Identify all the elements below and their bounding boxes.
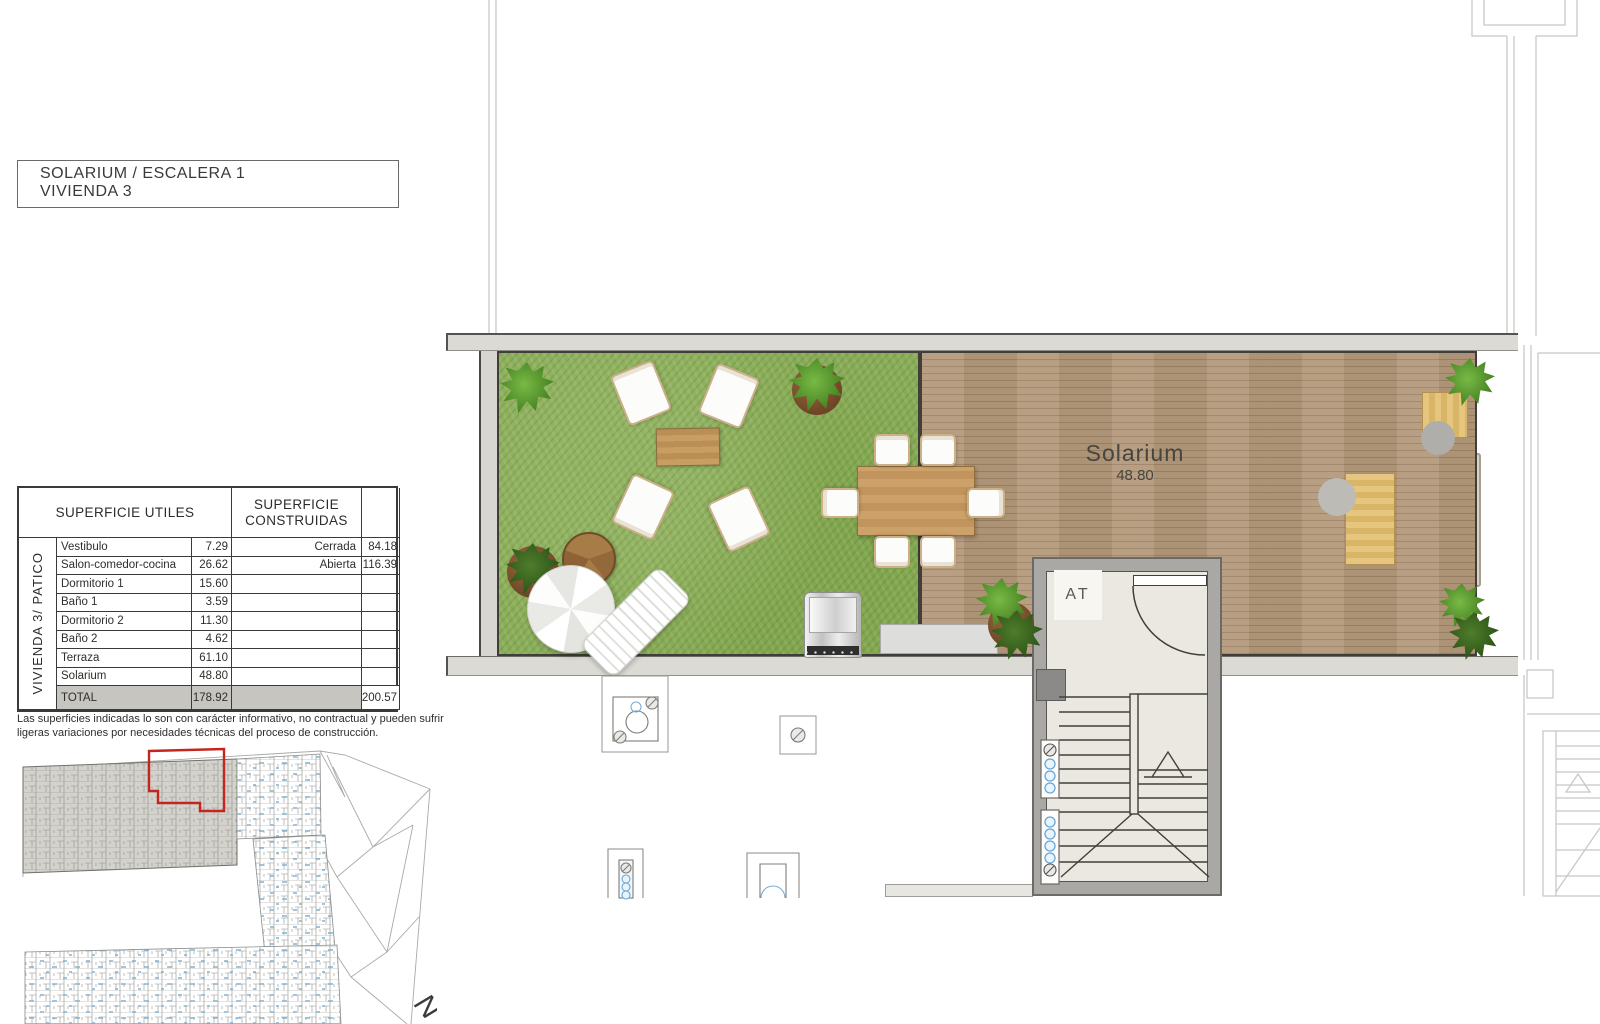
table-row-value: 26.62 [192, 557, 232, 576]
room-area: 48.80 [1050, 467, 1220, 484]
table-row-rlabel [232, 668, 362, 687]
title-line-1: SOLARIUM / ESCALERA 1 [40, 165, 398, 183]
table-row-rvalue [362, 575, 400, 594]
table-row-rvalue [362, 668, 400, 687]
table-total-rlabel [232, 686, 362, 710]
deck-counter [880, 624, 998, 654]
table-row-name: Solarium [57, 668, 192, 687]
table-row-rlabel [232, 594, 362, 613]
table-row-value: 3.59 [192, 594, 232, 613]
stair-label-box: AT [1054, 570, 1102, 620]
lower-wall-bar [885, 884, 1033, 897]
table-row-rvalue: 116.39 [362, 557, 400, 576]
dining-chair-left [821, 488, 859, 518]
round-gray-table [1421, 421, 1455, 455]
bottom-wall-left [446, 656, 1032, 676]
table-total-value: 178.92 [192, 686, 232, 710]
disclaimer-text: Las superficies indicadas lo son con car… [17, 712, 445, 741]
table-side-label: VIVIENDA 3/ PATICO [19, 538, 57, 710]
table-row-rlabel [232, 649, 362, 668]
surfaces-table: SUPERFICIE UTILES SUPERFICIE CONSTRUIDAS… [17, 486, 398, 712]
dining-chair-top-1 [874, 434, 910, 466]
table-row-rvalue [362, 631, 400, 650]
table-header-left: SUPERFICIE UTILES [19, 488, 232, 538]
table-row-rvalue [362, 649, 400, 668]
table-row-rlabel: Abierta [232, 557, 362, 576]
table-row-rvalue [362, 612, 400, 631]
garden-side-table [656, 427, 721, 466]
table-row-value: 15.60 [192, 575, 232, 594]
dining-chair-bottom-2 [920, 536, 956, 568]
table-row-name: Terraza [57, 649, 192, 668]
table-row-rvalue: 84.18 [362, 538, 400, 557]
title-line-2: VIVIENDA 3 [40, 183, 398, 201]
bbq-grill [804, 592, 862, 658]
table-row-value: 61.10 [192, 649, 232, 668]
table-row-rlabel: Cerrada [232, 538, 362, 557]
table-row-name: Dormitorio 1 [57, 575, 192, 594]
bottom-wall-right [1222, 656, 1518, 676]
wall-connector-block [1036, 669, 1066, 701]
site-bottom-wing [25, 945, 341, 1024]
table-row-value: 48.80 [192, 668, 232, 687]
table-row-name: Dormitorio 2 [57, 612, 192, 631]
grill-lid [809, 597, 857, 633]
room-name: Solarium [1050, 440, 1220, 467]
door-leaf [1133, 575, 1207, 586]
site-right-wing [253, 835, 335, 954]
round-rug [1318, 478, 1356, 516]
table-row-value: 11.30 [192, 612, 232, 631]
room-label: Solarium 48.80 [1050, 440, 1220, 484]
north-indicator: N [408, 988, 437, 1024]
top-wall [446, 333, 1518, 351]
table-row-name: Baño 1 [57, 594, 192, 613]
table-total-label: TOTAL [57, 686, 192, 710]
table-row-name: Salon-comedor-cocina [57, 557, 192, 576]
left-wall-strip [479, 351, 497, 656]
table-row-rvalue [362, 594, 400, 613]
table-header-right: SUPERFICIE CONSTRUIDAS [232, 488, 362, 538]
table-row-name: Baño 2 [57, 631, 192, 650]
table-row-value: 4.62 [192, 631, 232, 650]
title-box: SOLARIUM / ESCALERA 1 VIVIENDA 3 [17, 160, 399, 208]
dining-chair-bottom-1 [874, 536, 910, 568]
table-header-value-col [362, 488, 400, 538]
stair-label: AT [1065, 586, 1090, 604]
dining-table [857, 466, 975, 536]
floorplan-sheet: AT [0, 0, 1600, 1024]
table-row-rlabel [232, 612, 362, 631]
table-row-name: Vestibulo [57, 538, 192, 557]
dining-chair-top-2 [920, 434, 956, 466]
table-row-value: 7.29 [192, 538, 232, 557]
table-row-rlabel [232, 575, 362, 594]
grill-controls [807, 646, 859, 655]
site-plan: N [15, 737, 437, 1024]
dining-chair-right [967, 488, 1005, 518]
table-row-rlabel [232, 631, 362, 650]
table-total-rvalue: 200.57 [362, 686, 400, 710]
